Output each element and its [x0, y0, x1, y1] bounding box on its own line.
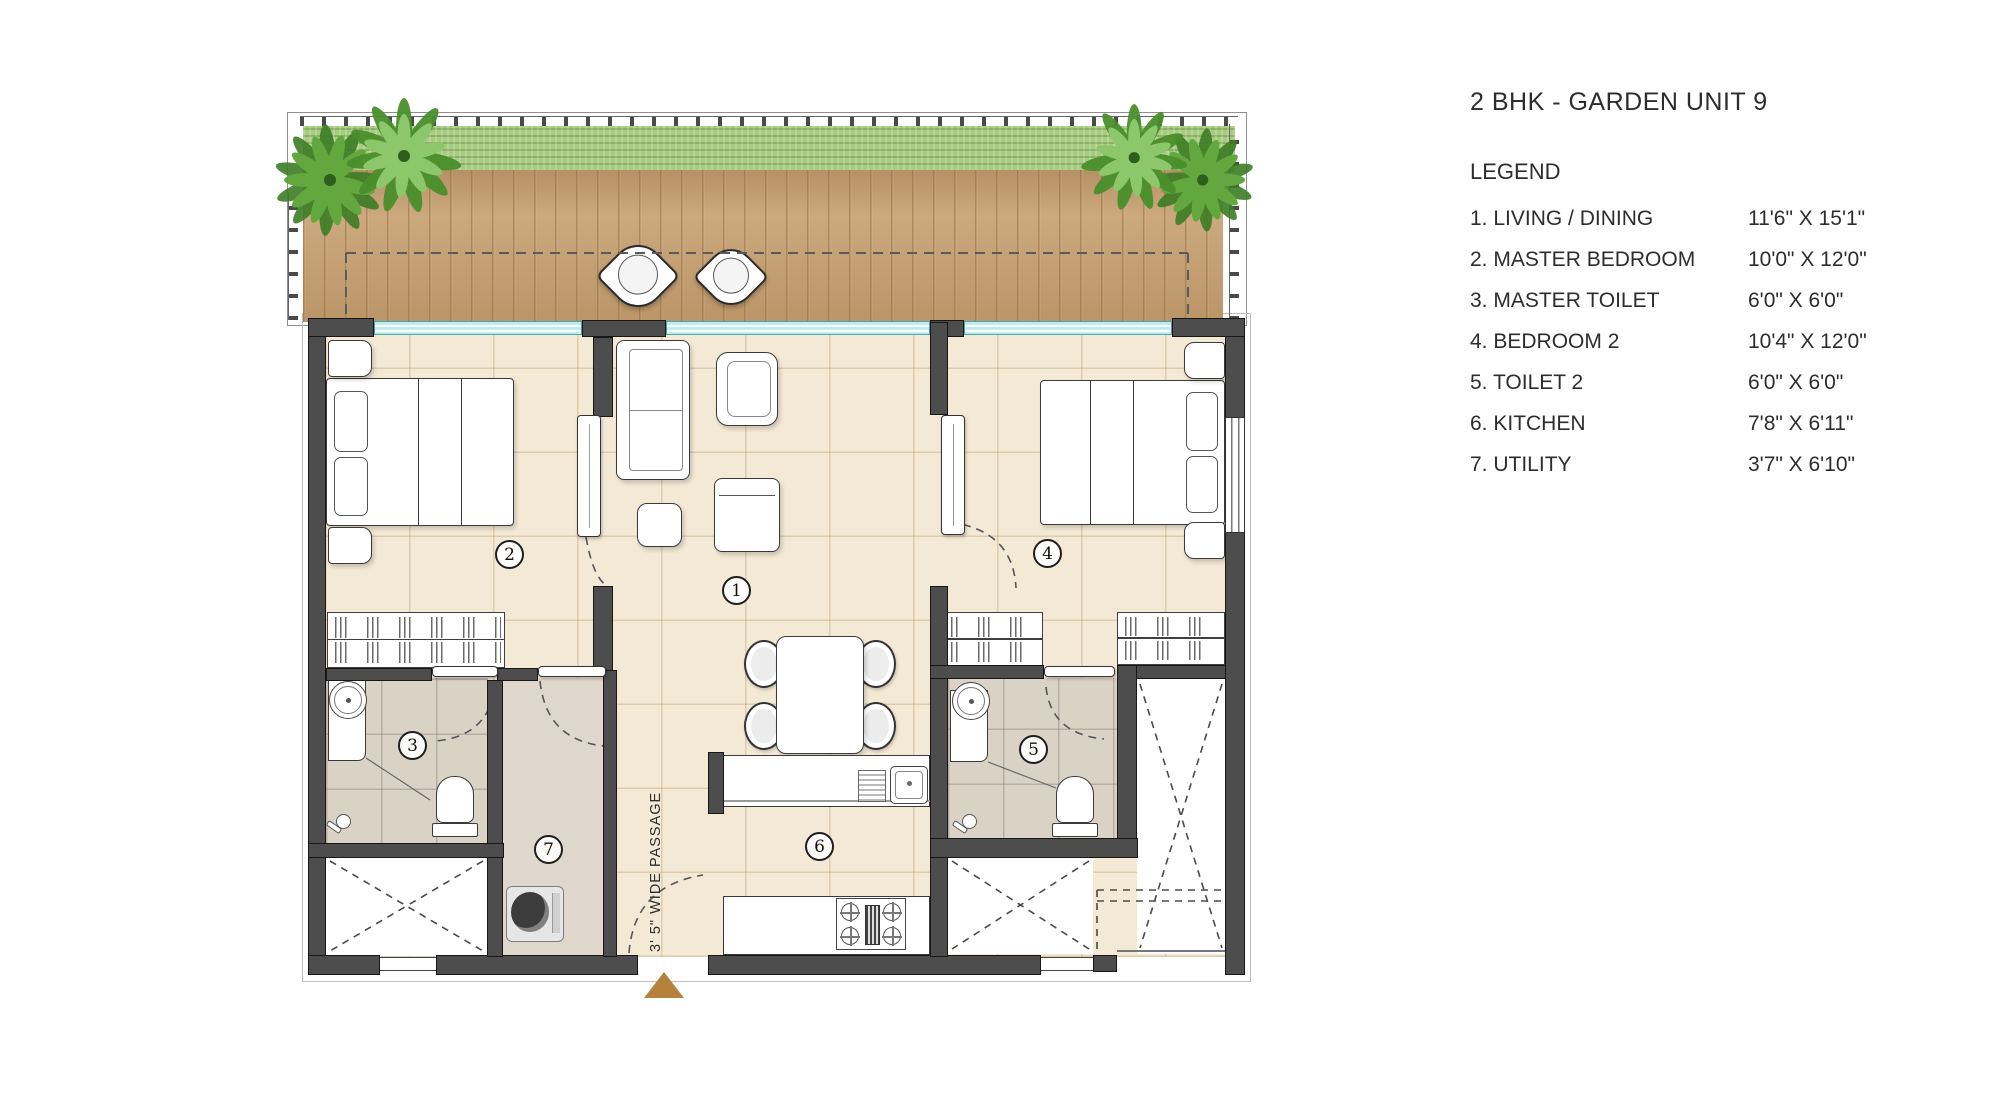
wall-segment: [326, 668, 432, 681]
stove: [836, 898, 906, 950]
burner-icon: [841, 927, 859, 945]
wardrobe-rail: [939, 638, 1042, 640]
hanger-row: [1121, 641, 1221, 660]
nightstand: [328, 527, 372, 564]
burner-icon: [883, 927, 901, 945]
legend-room-dim: 10'0" X 12'0": [1748, 248, 1867, 272]
wall-segment: [308, 955, 380, 975]
room-label-living: 1: [722, 576, 751, 605]
legend-room-name: 7. UTILITY: [1470, 453, 1748, 477]
legend-room-name: 1. LIVING / DINING: [1470, 207, 1748, 231]
kitchen-sink: [890, 766, 928, 804]
armchair: [714, 478, 780, 552]
toilet-wc: [436, 776, 474, 823]
legend-room-dim: 6'0" X 6'0": [1748, 371, 1843, 395]
wall-segment: [308, 318, 326, 975]
nightstand: [1184, 342, 1225, 379]
deck-chair-seat: [706, 250, 757, 301]
hanger-row: [331, 642, 501, 663]
dining-chair-seat: [751, 647, 777, 681]
room-label-toilet2: 5: [1019, 735, 1048, 764]
pillow: [334, 391, 368, 452]
wardrobe: [327, 612, 505, 668]
hanger-row: [942, 617, 1039, 637]
deck-chair-seat: [609, 246, 666, 303]
washbasin: [329, 681, 367, 719]
sofa: [616, 340, 690, 480]
legend-panel: 2 BHK - GARDEN UNIT 9 LEGEND 1. LIVING /…: [1470, 88, 1867, 494]
bedroom2-bed-blanket: [1090, 381, 1134, 524]
legend-room-name: 5. TOILET 2: [1470, 371, 1748, 395]
wall-segment: [582, 320, 666, 337]
toilet-wc-tank: [1052, 823, 1098, 837]
pillow: [334, 457, 368, 516]
drainboard: [858, 770, 886, 802]
room-label-bedroom2: 4: [1033, 539, 1062, 568]
boundary-line: [1117, 950, 1225, 952]
legend-room-name: 3. MASTER TOILET: [1470, 289, 1748, 313]
armchair-seat: [727, 361, 771, 417]
toilet-wc-tank: [432, 823, 478, 837]
window: [1225, 417, 1245, 533]
wall-segment: [593, 586, 613, 672]
burner-icon: [841, 903, 859, 921]
hanger-row: [1121, 617, 1221, 636]
shaft-area: [1137, 678, 1226, 954]
wall-segment: [497, 668, 538, 681]
room-label-kitchen: 6: [805, 832, 834, 861]
wall-segment: [308, 843, 504, 858]
room-label-master-toilet: 3: [398, 731, 427, 760]
shower-head-icon: [962, 814, 977, 829]
wall-segment: [708, 752, 724, 814]
wall-segment: [930, 586, 948, 957]
legend-row: 5. TOILET 2 6'0" X 6'0": [1470, 371, 1867, 395]
wall-segment: [930, 665, 1044, 679]
burner-icon: [883, 903, 901, 921]
plant-icon: [1075, 84, 1260, 274]
window: [374, 321, 582, 335]
door-leaf: [577, 415, 601, 537]
legend-row: 6. KITCHEN 7'8" X 6'11": [1470, 412, 1867, 436]
wall-segment: [593, 337, 613, 417]
washbasin: [952, 682, 990, 720]
dining-chair-seat: [863, 709, 889, 743]
legend-room-name: 2. MASTER BEDROOM: [1470, 248, 1748, 272]
shower-head-icon: [336, 814, 351, 829]
hanger-row: [331, 617, 501, 638]
pouf: [637, 503, 682, 547]
legend-room-dim: 10'4" X 12'0": [1748, 330, 1867, 354]
legend-row: 7. UTILITY 3'7" X 6'10": [1470, 453, 1867, 477]
wardrobe: [1117, 612, 1225, 665]
legend-row: 4. BEDROOM 2 10'4" X 12'0": [1470, 330, 1867, 354]
floor-plan-sheet: 1 2 3 4 5 6 7 3' 5" WIDE PASSAGE 2 BHK -…: [0, 0, 2000, 1111]
dining-chair-seat: [863, 647, 889, 681]
legend-room-name: 4. BEDROOM 2: [1470, 330, 1748, 354]
door-leaf-line: [589, 424, 590, 528]
legend-row: 2. MASTER BEDROOM 10'0" X 12'0": [1470, 248, 1867, 272]
pillow: [1186, 456, 1218, 513]
wall-segment: [1225, 531, 1245, 975]
wall-segment: [1117, 665, 1137, 857]
plant-icon: [268, 84, 468, 274]
ledge-area: [948, 857, 1093, 954]
washbasin-drain: [346, 698, 351, 703]
kitchen-sink-tap: [907, 781, 912, 786]
washing-machine-drum: [511, 892, 549, 932]
legend-room-dim: 11'6" X 15'1": [1748, 207, 1865, 231]
wardrobe-rail: [1118, 637, 1224, 639]
nightstand: [328, 340, 372, 377]
legend-heading: LEGEND: [1470, 159, 1867, 185]
wall-segment: [1172, 318, 1245, 337]
room-label-master-bedroom: 2: [495, 540, 524, 569]
nightstand: [1184, 522, 1225, 559]
armchair-back: [719, 481, 775, 496]
wardrobe-rail: [328, 639, 504, 641]
wall-segment: [308, 318, 374, 337]
washing-machine-panel: [552, 893, 560, 933]
washbasin-drain: [969, 699, 974, 704]
wall-segment: [1093, 955, 1117, 972]
entrance-arrow: [644, 972, 684, 998]
door-leaf: [941, 415, 965, 535]
legend-room-dim: 7'8" X 6'11": [1748, 412, 1853, 436]
legend-row: 1. LIVING / DINING 11'6" X 15'1": [1470, 207, 1867, 231]
wall-segment: [436, 955, 638, 975]
legend-room-dim: 6'0" X 6'0": [1748, 289, 1843, 313]
wall-segment: [930, 322, 948, 415]
door-leaf: [1044, 666, 1115, 677]
legend-room-dim: 3'7" X 6'10": [1748, 453, 1855, 477]
wall-segment: [487, 680, 503, 957]
dining-table: [776, 636, 864, 754]
wall-segment: [930, 838, 1138, 858]
hanger-row: [942, 642, 1039, 662]
washing-machine: [506, 886, 564, 942]
sofa-divider: [629, 410, 683, 411]
window: [964, 321, 1172, 335]
armchair: [716, 352, 778, 426]
toilet-wc: [1056, 776, 1094, 823]
stove-grill: [865, 905, 880, 945]
window: [666, 321, 930, 335]
wardrobe: [938, 612, 1043, 667]
master-bed-blanket: [418, 379, 462, 525]
page-title: 2 BHK - GARDEN UNIT 9: [1470, 88, 1867, 117]
pillow: [1186, 392, 1218, 451]
passage-label: 3' 5" WIDE PASSAGE: [648, 792, 664, 952]
door-leaf: [432, 666, 498, 677]
legend-row: 3. MASTER TOILET 6'0" X 6'0": [1470, 289, 1867, 313]
legend-room-name: 6. KITCHEN: [1470, 412, 1748, 436]
wall-segment: [708, 955, 1041, 975]
dining-chair-seat: [751, 709, 777, 743]
door-leaf: [538, 666, 606, 677]
wall-segment: [603, 670, 617, 957]
window-sill: [380, 957, 436, 971]
ledge-area: [326, 857, 488, 956]
room-label-utility: 7: [534, 835, 563, 864]
window-sill: [1041, 957, 1093, 971]
door-leaf-line: [953, 424, 954, 526]
